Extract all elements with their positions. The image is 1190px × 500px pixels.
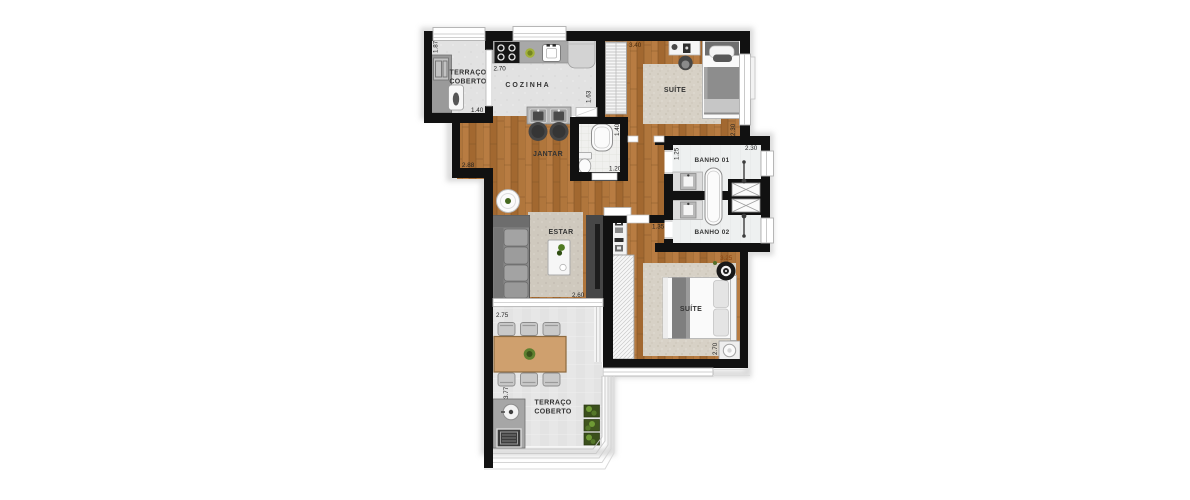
- svg-text:3.77: 3.77: [503, 386, 510, 399]
- svg-text:3.40: 3.40: [629, 42, 642, 49]
- svg-text:1.87: 1.87: [433, 40, 440, 53]
- svg-text:2.30: 2.30: [730, 123, 737, 136]
- svg-text:2.88: 2.88: [462, 162, 475, 169]
- svg-text:JANTAR: JANTAR: [533, 151, 563, 158]
- svg-text:COBERTO: COBERTO: [449, 79, 487, 86]
- svg-text:COZINHA: COZINHA: [505, 82, 550, 89]
- svg-text:2.70: 2.70: [712, 342, 719, 355]
- svg-text:BANHO 01: BANHO 01: [694, 157, 729, 164]
- svg-text:2.70: 2.70: [494, 66, 507, 73]
- svg-text:COBERTO: COBERTO: [534, 409, 572, 416]
- svg-text:1.63: 1.63: [586, 90, 593, 103]
- svg-text:TERRAÇO: TERRAÇO: [449, 70, 486, 77]
- svg-text:2.30: 2.30: [745, 145, 758, 152]
- svg-text:1.25: 1.25: [674, 147, 681, 160]
- svg-text:3.25: 3.25: [720, 255, 733, 262]
- svg-text:1.35: 1.35: [652, 224, 665, 231]
- svg-text:TERRAÇO: TERRAÇO: [534, 400, 571, 407]
- svg-text:SUÍTE: SUÍTE: [680, 304, 702, 313]
- svg-text:2.75: 2.75: [496, 312, 509, 319]
- svg-text:ESTAR: ESTAR: [549, 229, 574, 236]
- svg-text:2.60: 2.60: [572, 292, 585, 299]
- svg-text:BANHO 02: BANHO 02: [694, 229, 729, 236]
- svg-text:1.20: 1.20: [609, 166, 622, 173]
- svg-text:SUÍTE: SUÍTE: [664, 85, 686, 94]
- svg-text:1.40: 1.40: [471, 107, 484, 114]
- svg-text:1.40: 1.40: [614, 123, 621, 136]
